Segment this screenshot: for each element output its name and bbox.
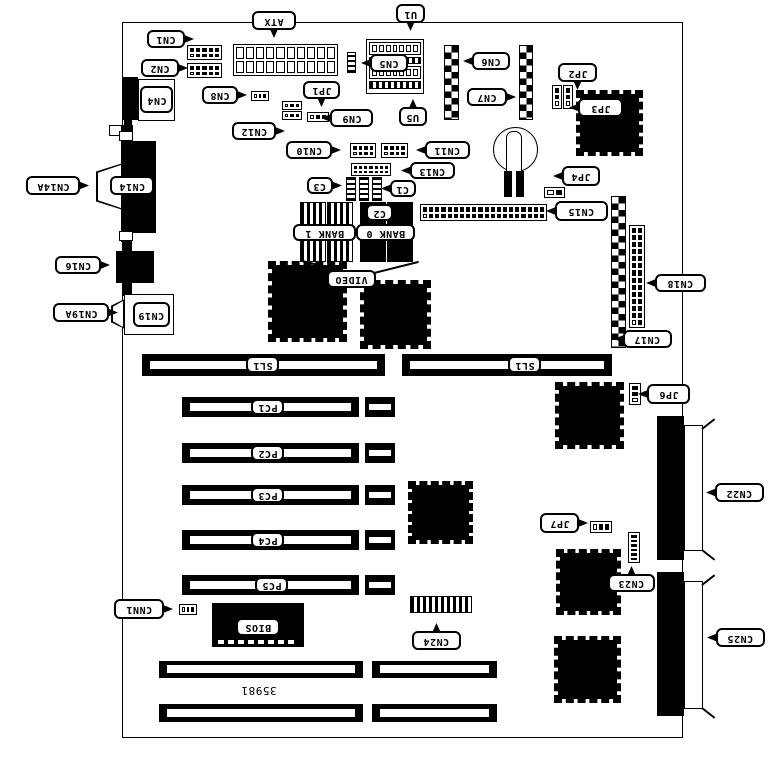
part-bios-dashes (218, 640, 298, 644)
part-cn17-header (611, 196, 626, 348)
pin-cell (317, 61, 325, 73)
pin-cell (236, 47, 244, 59)
part-cn22-tick-top (701, 418, 715, 429)
label-bank1: BANK 1 (293, 224, 356, 241)
pin-cell (285, 114, 288, 117)
pin-cell (370, 152, 374, 156)
part-cn22-tick-bottom (701, 549, 715, 560)
pin-cell (632, 249, 636, 254)
label-jp6-text: JP6 (659, 389, 679, 399)
pin-cell (478, 214, 482, 219)
part-iso-stripe-1 (167, 665, 355, 673)
pin-cell (460, 214, 464, 219)
pin-cell (638, 313, 642, 318)
pin-cell (317, 47, 325, 59)
part-chip-bottom-right-2 (554, 636, 621, 703)
pin-cell (491, 207, 495, 212)
part-cn25-shell (684, 581, 703, 709)
pin-cell (196, 66, 200, 70)
part-cn25-tick-top (701, 574, 715, 585)
pin-cell (202, 72, 206, 76)
label-cn23-text: CN23 (618, 578, 644, 588)
label-pc1-text: PC1 (258, 402, 278, 412)
label-pc5-text: PC5 (262, 580, 282, 590)
label-cn11: CN11 (425, 141, 470, 159)
part-speaker-base (504, 171, 524, 197)
label-pc3-text: PC3 (258, 490, 278, 500)
label-cn13-text: CN13 (419, 166, 445, 176)
pin-cell (638, 292, 642, 297)
label-atx: ATX (252, 11, 296, 30)
part-cn2-header (187, 63, 222, 78)
label-jp1: JP1 (303, 81, 340, 99)
part-cnn1-pins (179, 604, 197, 615)
part-cn19-shell-face (113, 301, 123, 327)
pin-cell (599, 524, 603, 530)
label-cnn1-text: CNN1 (126, 604, 152, 614)
label-cn5: CN5 (370, 54, 408, 72)
label-cn22: CN22 (715, 483, 764, 502)
part-cn4-edge (123, 77, 138, 120)
pin-cell (632, 320, 636, 325)
pin-cell (515, 214, 519, 219)
label-cn16-text: CN16 (65, 260, 91, 270)
part-cn14-screw-top (119, 131, 133, 141)
pin-cell (327, 61, 335, 73)
label-part-number-text: 35981 (241, 685, 277, 696)
label-cn14a-text: CN14A (37, 181, 70, 191)
label-cn15-text: CN15 (568, 206, 594, 216)
pin-cell (555, 95, 559, 100)
pin-cell (509, 214, 513, 219)
part-cn22-shell (684, 425, 703, 551)
label-bios: BIOS (236, 618, 280, 636)
pin-cell (386, 45, 391, 52)
pin-cell (460, 207, 464, 212)
label-cn16: CN16 (55, 256, 101, 274)
pin-cell (310, 115, 314, 119)
part-cn5-strip2 (369, 81, 421, 89)
pin-cell (246, 47, 254, 59)
pin-cell (276, 47, 284, 59)
pin-cell (285, 104, 288, 107)
pin-cell (631, 540, 637, 543)
pin-cell (182, 607, 185, 612)
label-cn1-text: CN1 (156, 34, 176, 44)
pin-cell (423, 214, 427, 219)
label-cnn1: CNN1 (114, 599, 164, 619)
label-cn19a-text: CN19A (65, 308, 98, 318)
pin-cell (593, 524, 597, 530)
label-cn4-text: CN4 (147, 95, 167, 105)
pin-cell (385, 171, 388, 174)
part-pc4-stripe2 (369, 537, 391, 543)
part-cap-a (346, 177, 356, 201)
pin-cell (236, 61, 244, 73)
pin-cell (187, 607, 190, 612)
pin-cell (215, 66, 219, 70)
label-bank0-text: BANK 0 (366, 228, 405, 238)
pin-cell (632, 285, 636, 290)
pin-cell (566, 101, 570, 106)
pin-cell (297, 61, 305, 73)
pin-cell (534, 207, 538, 212)
pin-cell (435, 207, 439, 212)
label-cn14: CN14 (110, 176, 154, 195)
pin-cell (390, 152, 394, 156)
pin-cell (466, 207, 470, 212)
part-bank1-chip3 (300, 238, 326, 262)
part-jp2-pins-b (563, 85, 573, 109)
pin-cell (638, 249, 642, 254)
label-sl1a: SL1 (246, 356, 279, 373)
label-cn9-text: CN9 (342, 113, 362, 123)
pin-cell (266, 61, 274, 73)
pin-cell (638, 285, 642, 290)
pin-cell (632, 292, 636, 297)
pin-cell (413, 69, 418, 76)
pin-cell (401, 152, 405, 156)
pin-cell (632, 386, 638, 390)
pin-cell (364, 166, 367, 169)
pin-cell (454, 214, 458, 219)
label-pc2: PC2 (251, 445, 284, 461)
part-cap-c (372, 177, 382, 201)
label-pc5: PC5 (255, 577, 288, 593)
pin-cell (632, 313, 636, 318)
label-cn17-text: CN17 (634, 334, 660, 344)
pin-cell (369, 166, 372, 169)
part-cn18-header (629, 225, 645, 328)
pin-cell (379, 45, 384, 52)
pin-cell (215, 72, 219, 76)
pin-cell (375, 166, 378, 169)
label-cn25-text: CN25 (727, 633, 753, 643)
pin-cell (290, 104, 293, 107)
pin-cell (485, 207, 489, 212)
label-pc2-text: PC2 (258, 448, 278, 458)
pin-cell (209, 48, 213, 52)
pin-cell (638, 263, 642, 268)
pin-cell (202, 54, 206, 58)
label-cn12: CN12 (232, 122, 276, 140)
label-bank0: BANK 0 (356, 224, 415, 241)
pin-cell (190, 72, 194, 76)
part-bank1-chip2 (327, 202, 353, 226)
pin-cell (327, 47, 335, 59)
part-cn25-tick-bottom (701, 707, 715, 718)
pin-cell (631, 549, 637, 552)
pin-cell (448, 207, 452, 212)
pin-cell (631, 558, 637, 561)
pin-cell (555, 88, 559, 93)
pin-cell (359, 166, 362, 169)
pin-cell (540, 214, 544, 219)
pin-cell (406, 69, 411, 76)
pin-cell (202, 66, 206, 70)
pin-cell (359, 152, 363, 156)
pin-cell (631, 535, 637, 538)
label-cn23: CN23 (608, 574, 655, 592)
label-cn19a: CN19A (53, 303, 109, 322)
pin-cell (638, 270, 642, 275)
pin-cell (441, 214, 445, 219)
label-atx-text: ATX (264, 16, 284, 26)
label-video: VIDEO (327, 270, 376, 288)
pin-cell (380, 171, 383, 174)
part-jp4-pins (544, 187, 565, 198)
pin-cell (547, 190, 554, 195)
label-cn6-text: CN6 (481, 56, 501, 66)
pin-cell (256, 61, 264, 73)
label-part-number: 35981 (235, 683, 283, 697)
pin-cell (190, 54, 194, 58)
pin-cell (423, 207, 427, 212)
pin-cell (632, 256, 636, 261)
label-pc4: PC4 (251, 532, 284, 548)
pin-cell (370, 146, 374, 150)
part-sl1-right-stripe (410, 361, 604, 369)
label-c1-text: C1 (396, 184, 409, 194)
pin-cell (632, 278, 636, 283)
label-cn8-text: CN8 (210, 90, 230, 100)
part-bank1-chip1 (300, 202, 326, 226)
pin-cell (353, 146, 357, 150)
label-cn14a-pointer (78, 181, 89, 190)
pin-cell (307, 61, 315, 73)
label-cn4: CN4 (140, 86, 173, 113)
pin-cell (202, 48, 206, 52)
pin-cell (435, 214, 439, 219)
label-jp7-text: JP7 (550, 518, 570, 528)
pin-cell (521, 207, 525, 212)
part-bank0-chip4 (387, 238, 413, 262)
label-c3-text: C3 (313, 181, 326, 191)
pin-cell (632, 398, 638, 402)
part-cn23-pins (628, 532, 640, 563)
pin-cell (375, 171, 378, 174)
pin-cell (359, 171, 362, 174)
label-sl1b-text: SL1 (515, 360, 535, 370)
part-pc2-stripe2 (369, 450, 391, 456)
pin-cell (296, 114, 299, 117)
pin-cell (566, 95, 570, 100)
pin-cell (632, 235, 636, 240)
label-bank1-text: BANK 1 (305, 228, 344, 238)
pin-cell (638, 228, 642, 233)
part-cn6-header (444, 45, 459, 120)
pin-cell (566, 88, 570, 93)
label-cn9: CN9 (330, 109, 373, 127)
pin-cell (429, 214, 433, 219)
label-cn22-pointer (706, 488, 717, 497)
pin-cell (509, 207, 513, 212)
pin-cell (632, 228, 636, 233)
part-cn8-pins (251, 91, 269, 101)
pin-cell (246, 61, 254, 73)
label-u5-text: U5 (406, 112, 419, 122)
pin-cell (209, 54, 213, 58)
pin-cell (632, 392, 638, 396)
pin-cell (287, 61, 295, 73)
label-cn10-text: CN10 (296, 145, 322, 155)
pin-cell (528, 214, 532, 219)
part-pc3-stripe2 (369, 492, 391, 498)
pin-cell (196, 48, 200, 52)
pin-cell (448, 214, 452, 219)
pin-cell (191, 607, 194, 612)
label-cn16-pointer (99, 261, 110, 270)
label-cn25: CN25 (716, 628, 765, 647)
label-c1: C1 (390, 180, 416, 197)
pin-cell (534, 214, 538, 219)
label-cn10: CN10 (286, 141, 332, 159)
pin-cell (372, 45, 377, 52)
part-cn7-header (519, 45, 533, 120)
pin-cell (384, 146, 388, 150)
part-pc5-stripe2 (369, 582, 391, 588)
pin-cell (196, 72, 200, 76)
pin-cell (632, 242, 636, 247)
label-c2-text: C2 (373, 208, 386, 218)
pin-cell (466, 214, 470, 219)
part-iso-stripe-4 (380, 709, 489, 717)
label-cn5-text: CN5 (379, 58, 399, 68)
pin-cell (497, 207, 501, 212)
pin-cell (556, 190, 563, 195)
pin-cell (515, 207, 519, 212)
label-cn11-text: CN11 (434, 145, 460, 155)
pin-cell (540, 207, 544, 212)
part-cap-b (359, 177, 369, 201)
pin-cell (638, 235, 642, 240)
label-jp3: JP3 (578, 98, 623, 117)
label-cn18-text: CN18 (667, 278, 693, 288)
part-jp7-pins (590, 521, 612, 533)
pin-cell (364, 146, 368, 150)
label-cn6: CN6 (472, 52, 510, 70)
pin-cell (297, 47, 305, 59)
pin-cell (190, 48, 194, 52)
pin-cell (390, 146, 394, 150)
pin-cell (307, 47, 315, 59)
label-cn7: CN7 (467, 88, 507, 106)
part-iso-stripe-2 (380, 665, 489, 673)
pin-cell (528, 207, 532, 212)
pin-cell (396, 152, 400, 156)
pin-cell (491, 214, 495, 219)
label-sl1a-text: SL1 (253, 360, 273, 370)
pin-cell (364, 171, 367, 174)
pin-cell (259, 94, 262, 98)
label-cn25-pointer (707, 633, 718, 642)
part-atx-connector (233, 44, 338, 76)
part-cn1-header (187, 45, 222, 60)
pin-cell (638, 242, 642, 247)
pin-cell (290, 114, 293, 117)
label-jp6: JP6 (647, 384, 690, 404)
part-jp1-pins-b (282, 111, 302, 120)
label-c2: C2 (366, 204, 393, 221)
pin-cell (296, 104, 299, 107)
label-c3: C3 (307, 177, 333, 194)
pin-cell (406, 45, 411, 52)
part-chip-middle (408, 481, 473, 544)
label-cn18: CN18 (655, 274, 706, 292)
pin-cell (632, 270, 636, 275)
label-u1: U1 (396, 4, 425, 23)
label-cn14-text: CN14 (119, 181, 145, 191)
pin-cell (316, 115, 320, 119)
pin-cell (266, 47, 274, 59)
pin-cell (287, 47, 295, 59)
pin-cell (354, 171, 357, 174)
part-chip-mid-right (555, 382, 624, 449)
label-cn12-text: CN12 (241, 126, 267, 136)
pin-cell (385, 166, 388, 169)
part-cn11-header (381, 143, 408, 158)
pin-cell (256, 47, 264, 59)
label-u5: U5 (399, 107, 427, 126)
pin-cell (632, 263, 636, 268)
part-cn22-edge (657, 416, 684, 560)
label-jp1-text: JP1 (312, 85, 332, 95)
label-cn2: CN2 (141, 59, 179, 77)
pin-cell (503, 207, 507, 212)
pin-cell (429, 207, 433, 212)
pin-cell (190, 66, 194, 70)
label-jp2-text: JP2 (568, 68, 588, 78)
label-pc4-text: PC4 (258, 535, 278, 545)
part-cn13-header (351, 163, 391, 176)
part-cn24-part (410, 596, 472, 613)
label-cn15: CN15 (555, 201, 608, 221)
pin-cell (638, 256, 642, 261)
pin-cell (215, 54, 219, 58)
label-jp3-text: JP3 (591, 103, 611, 113)
pin-cell (638, 306, 642, 311)
pin-cell (364, 152, 368, 156)
part-video-chip-right (360, 280, 431, 349)
pin-cell (384, 152, 388, 156)
pin-cell (632, 299, 636, 304)
pin-cell (441, 207, 445, 212)
pin-cell (497, 214, 501, 219)
pin-cell (521, 214, 525, 219)
pin-cell (196, 54, 200, 58)
pin-cell (555, 101, 559, 106)
part-cn10-header (350, 143, 376, 158)
part-bank1-chip4 (327, 238, 353, 262)
label-u1-text: U1 (404, 9, 417, 19)
label-cn1: CN1 (147, 30, 185, 48)
part-speaker-bar (506, 131, 522, 175)
pin-cell (380, 166, 383, 169)
label-cn24-text: CN24 (423, 636, 449, 646)
pin-cell (638, 320, 642, 325)
pin-cell (485, 214, 489, 219)
pin-cell (209, 72, 213, 76)
label-cn2-text: CN2 (150, 63, 170, 73)
label-cn13: CN13 (410, 162, 455, 179)
pin-cell (354, 166, 357, 169)
pin-cell (369, 171, 372, 174)
pin-cell (638, 299, 642, 304)
pin-cell (254, 94, 257, 98)
part-cn16-body (116, 251, 154, 283)
pin-cell (631, 544, 637, 547)
part-jp2-pins-a (552, 85, 562, 109)
